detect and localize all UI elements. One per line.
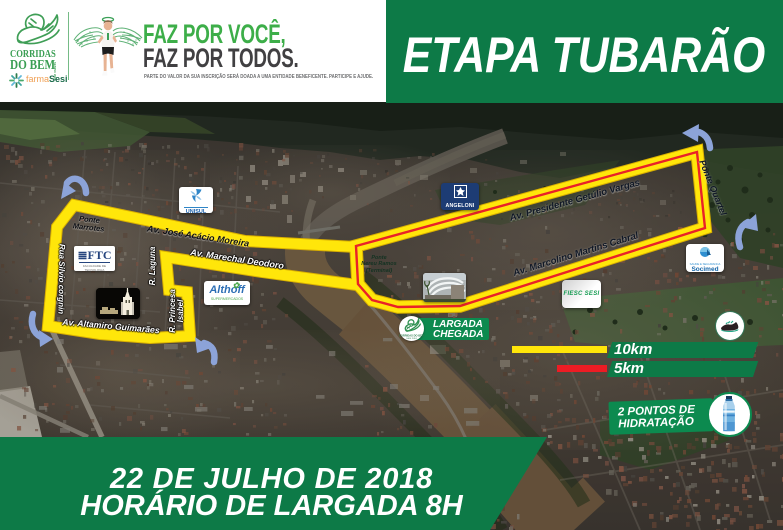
svg-text:SESI 2018: SESI 2018 (406, 338, 417, 340)
svg-text:CORRIDAS DO BEM: CORRIDAS DO BEM (399, 334, 424, 338)
